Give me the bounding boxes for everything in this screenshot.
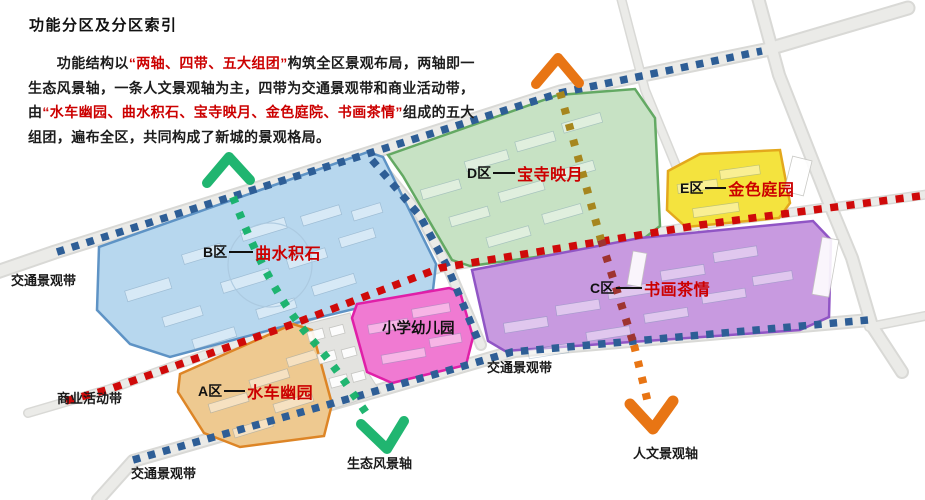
zone-a-name: 水车幽园 <box>247 379 313 403</box>
traffic-belt-label-mid: 交通景观带 <box>487 357 552 376</box>
eco-axis-arrow-up <box>207 157 250 183</box>
intro-paragraph: 功能结构以“两轴、四带、五大组团”构筑全区景观布局，两轴即一生态风景轴，一条人文… <box>28 51 482 149</box>
eco-axis-arrow-down <box>361 421 404 449</box>
zone-c-name: 书画茶情 <box>644 276 710 300</box>
zone-a-label: A区 水车幽园 <box>198 379 313 403</box>
zone-c-code: C区 <box>590 278 614 298</box>
zone-e-leader-line <box>705 187 726 190</box>
school-label: 小学幼儿园 <box>382 317 455 338</box>
intro-highlight-groups: “水车幽园、曲水积石、宝寺映月、金色庭院、书画茶情” <box>42 104 402 120</box>
zoning-plan-page: 功能分区及分区索引 功能结构以“两轴、四带、五大组团”构筑全区景观布局，两轴即一… <box>0 0 925 500</box>
zone-b-label: B区 曲水积石 <box>203 240 321 264</box>
zone-c-label: C区 书画茶情 <box>590 276 710 300</box>
commerce-belt-label: 商业活动带 <box>57 388 122 407</box>
culture-axis-label: 人文景观轴 <box>633 443 698 462</box>
zone-e-code: E区 <box>680 178 703 198</box>
zone-a-leader-line <box>224 390 245 393</box>
zone-d-code: D区 <box>467 163 491 183</box>
zone-b-code: B区 <box>203 242 227 262</box>
zone-a-code: A区 <box>198 381 222 401</box>
zone-d-label: D区 宝寺映月 <box>467 161 583 185</box>
traffic-belt-label-top: 交通景观带 <box>11 270 76 289</box>
eco-axis-label: 生态风景轴 <box>347 453 412 472</box>
zone-d-leader-line <box>493 172 515 175</box>
zone-d-name: 宝寺映月 <box>517 161 583 185</box>
zone-e-name: 金色庭园 <box>728 176 794 200</box>
intro-highlight-structure: “两轴、四带、五大组团” <box>129 55 288 71</box>
zone-b-name: 曲水积石 <box>255 240 321 264</box>
intro-seg1: 功能结构以 <box>28 55 129 71</box>
culture-axis-arrow-up <box>536 58 579 84</box>
page-title: 功能分区及分区索引 <box>29 14 178 35</box>
zone-b-leader-line <box>229 251 253 254</box>
zone-e-label: E区 金色庭园 <box>680 176 794 200</box>
zone-c-leader-line <box>616 287 642 290</box>
traffic-belt-label-bottom: 交通景观带 <box>131 463 196 482</box>
culture-axis-arrow-down <box>630 401 673 429</box>
